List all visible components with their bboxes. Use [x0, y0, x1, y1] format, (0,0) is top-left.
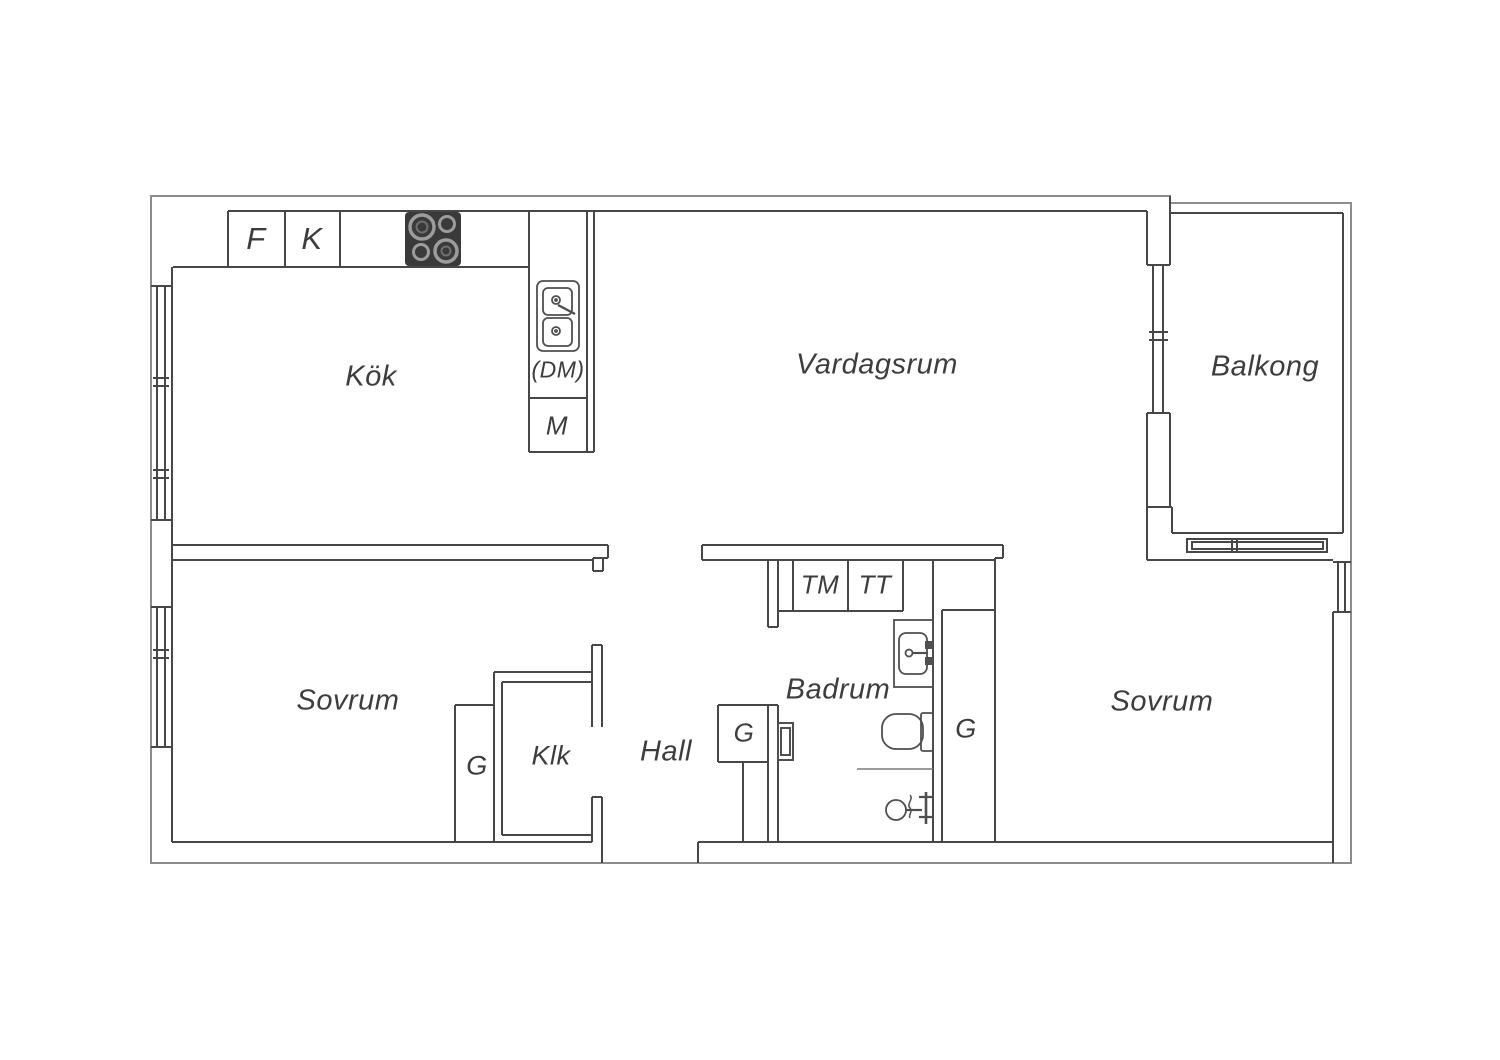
- appliance-label-freezer: K: [301, 221, 322, 257]
- room-label-bathroom: Badrum: [786, 674, 891, 707]
- appliance-label-dishwasher: (DM): [531, 357, 584, 384]
- room-label-hall: Hall: [640, 736, 692, 769]
- floorplan-canvas: Kök Vardagsrum Balkong Sovrum Sovrum Bad…: [0, 0, 1500, 1060]
- appliance-label-fridge: F: [246, 221, 265, 257]
- room-label-kitchen: Kök: [345, 361, 396, 394]
- appliance-label-tumble-dryer: TT: [859, 570, 892, 601]
- room-label-bedroom-left: Sovrum: [297, 685, 400, 718]
- shower-mixer-icon: [857, 769, 933, 824]
- room-label-living-room: Vardagsrum: [796, 349, 958, 382]
- stove-icon: [405, 212, 461, 266]
- wardrobe-label-hall: G: [734, 718, 755, 749]
- floorplan-drawing: [0, 0, 1500, 1060]
- wardrobe-label-bedroom: G: [466, 751, 488, 782]
- balcony-railing-icon: [1187, 539, 1327, 552]
- wardrobe-label-right: G: [955, 714, 977, 745]
- wall-shaft-icon: [778, 723, 793, 760]
- kitchen-sink-icon: [537, 281, 579, 351]
- walls: [172, 196, 1343, 863]
- appliance-label-m-cabinet: M: [546, 411, 568, 442]
- room-label-walk-in-closet: Klk: [531, 741, 570, 772]
- room-label-bedroom-right: Sovrum: [1111, 686, 1214, 719]
- toilet-icon: [882, 713, 933, 751]
- bathroom-sink-icon: [894, 620, 933, 687]
- appliance-label-washing-machine: TM: [801, 570, 840, 601]
- room-label-balcony: Balkong: [1211, 351, 1319, 384]
